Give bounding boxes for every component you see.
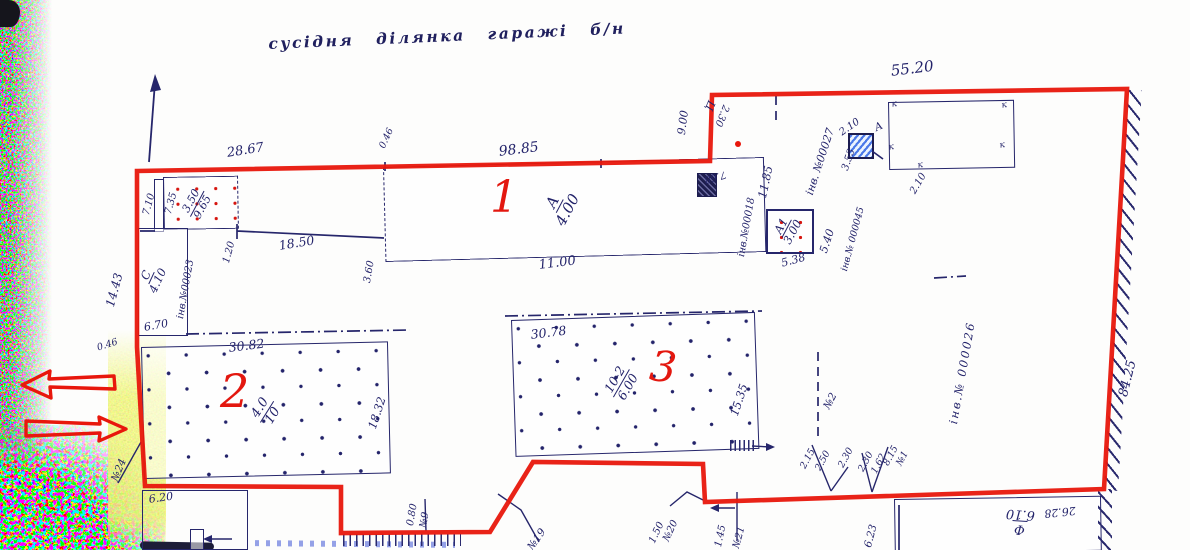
- top-right-dim: 3.53: [841, 148, 857, 172]
- point-21-offset: 1.45: [714, 524, 728, 548]
- point-24-label: №24: [110, 457, 128, 483]
- fence-comb-bottom: [343, 534, 461, 546]
- fence-hatch-right-lower: [1098, 489, 1112, 550]
- fence-hatch-right: [1104, 90, 1142, 491]
- top-right-building-outline: [888, 100, 1015, 170]
- point-19-label: №19: [526, 527, 548, 550]
- building-1-bottom-dim: 11.00: [538, 254, 577, 271]
- red-survey-dot: [735, 141, 741, 147]
- building-a1-bottom-dim: 5.38: [780, 252, 807, 269]
- scan-noise-left-edge: [0, 0, 55, 550]
- shed-dim: 6.20: [148, 491, 174, 505]
- building-f-litera-letter: Ф: [1012, 520, 1028, 536]
- top-right-inventory: інв. №00027: [804, 127, 836, 197]
- dim-left-corner: 0.46: [96, 337, 119, 353]
- site-inventory-number: інв.№ 000026: [948, 321, 977, 425]
- dim-top-gap: 0.46: [378, 127, 396, 150]
- dim-top-right: 55.20: [890, 59, 934, 79]
- small-box-outline: [190, 529, 204, 550]
- dim-row-length: 18.50: [278, 234, 315, 252]
- dim-row-depth: 3.60: [363, 260, 377, 284]
- dim-row-gap: 1.20: [222, 240, 237, 264]
- building-f-top-dim: 26.28: [1044, 505, 1076, 519]
- dim-top-left: 28.67: [226, 141, 265, 160]
- garage-row-narrow-building: [154, 179, 164, 232]
- dim-left-side: 14.43: [104, 272, 124, 308]
- scan-noise-bottom-left: [0, 425, 165, 550]
- top-right-litera: А: [873, 121, 885, 134]
- building-3-number: 3: [648, 345, 679, 390]
- point-21-label: №21: [732, 526, 747, 550]
- scan-blob-top-left: [0, 0, 20, 27]
- building-2-number: 2: [220, 368, 249, 414]
- building-f-litera: Ф 6.10: [1005, 505, 1036, 536]
- building-a1-right-dim: 5.40: [818, 228, 836, 255]
- dim-notch-height: 9.00: [676, 110, 690, 136]
- point-20-label: №20: [662, 519, 680, 543]
- offset-left-3: 2.30: [837, 446, 855, 469]
- building-f-height: 6.10: [1006, 505, 1036, 521]
- building-1-number: 1: [490, 176, 518, 220]
- site-plan-scan: сусідня ділянка гаражі б/н 28.67 0.46 98…: [0, 0, 1190, 550]
- neighbor-plot-note: сусідня ділянка гаражі б/н: [268, 20, 626, 51]
- comb-building3-corner: [730, 440, 755, 451]
- building-1-right-dim: 11.85: [757, 165, 775, 200]
- flag-letter: Ц: [703, 99, 717, 112]
- north-arrow: [149, 74, 161, 162]
- building-a1-inventory: інв.№ 000045: [840, 206, 866, 272]
- point-9-label: №9: [419, 511, 432, 528]
- building-f-side-dim: 6.23: [863, 523, 879, 548]
- direction-arrow-left: [22, 371, 115, 398]
- direction-arrow-right: [26, 417, 126, 441]
- dim-top-main: 98.85: [498, 140, 540, 159]
- point-2-label: №2: [822, 391, 839, 411]
- top-right-wall-dim: 2.10: [909, 172, 929, 196]
